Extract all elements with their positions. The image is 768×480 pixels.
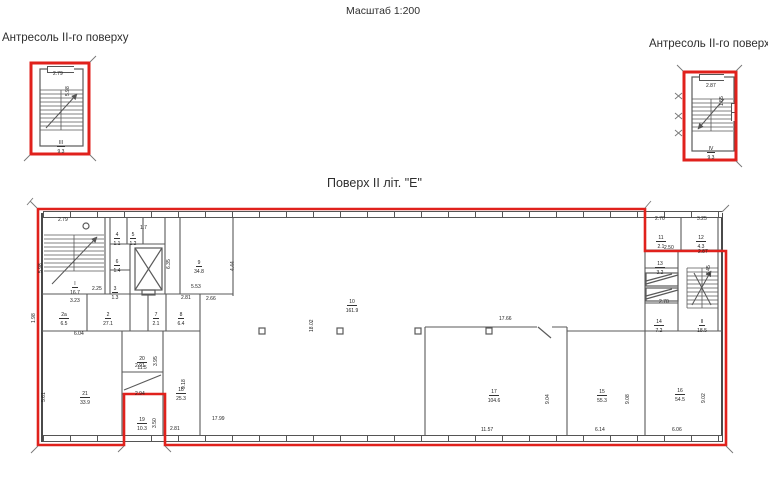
room-area: 18.5 (691, 328, 713, 334)
dimension-text: 2.25 (92, 287, 102, 292)
room-number: 19 (137, 417, 147, 424)
room-area: 1.3 (104, 295, 126, 301)
room-label: 17104.6 (483, 380, 505, 404)
room-number: 14 (654, 319, 664, 326)
room-number: 13 (655, 261, 665, 268)
room-area: 25.3 (170, 396, 192, 402)
room-label: I16.7 (64, 272, 86, 296)
room-label: 124.3 (690, 226, 712, 250)
room-area: 2.1 (145, 321, 167, 327)
floor-plan-document: Масштаб 1:200 Антресоль II-го поверху Ан… (0, 0, 768, 480)
room-number: III (57, 140, 65, 147)
room-number: 10 (347, 299, 357, 306)
dimension-text: 2.91 (135, 364, 145, 369)
room-number: 2 (105, 312, 112, 319)
room-number: 12 (696, 235, 706, 242)
room-number: 16 (675, 388, 685, 395)
dimension-text: 5.98 (66, 86, 71, 96)
room-number: 20 (137, 356, 147, 363)
room-label: 31.3 (104, 277, 126, 301)
room-number: 21 (80, 391, 90, 398)
dimension-text: 1.7 (140, 226, 147, 231)
dimension-text: 2.81 (181, 296, 191, 301)
room-label: IV9.3 (700, 137, 722, 161)
dimension-text: 18.02 (310, 319, 315, 332)
room-label: 10161.9 (341, 290, 363, 314)
room-label: 2133.9 (74, 382, 96, 406)
room-number: IV (707, 146, 716, 153)
room-area: 6.5 (53, 321, 75, 327)
room-area: 3.2 (649, 270, 671, 276)
dimension-text: 9.04 (546, 394, 551, 404)
room-area: 54.5 (669, 397, 691, 403)
dimension-text: 2.87 (706, 84, 716, 89)
room-number: 8 (178, 312, 185, 319)
room-label: 147.2 (648, 310, 670, 334)
room-number: I (72, 281, 77, 288)
dimension-text: 5.98 (39, 263, 44, 273)
room-area: 9.3 (50, 149, 72, 155)
room-number: 5 (130, 232, 137, 239)
dimension-text: 3.25 (697, 217, 707, 222)
room-number: 11 (656, 235, 665, 242)
dimension-text: 3.95 (154, 356, 159, 366)
room-number: 6 (114, 259, 121, 266)
dimension-text: 4.44 (231, 261, 236, 271)
room-label: 72.1 (145, 303, 167, 327)
dimension-text: 2.70 (655, 217, 665, 222)
room-label: 934.8 (188, 251, 210, 275)
room-number: 9 (196, 260, 203, 267)
room-number: II (699, 319, 706, 326)
room-area: 6.4 (170, 321, 192, 327)
room-label: 1654.5 (669, 379, 691, 403)
room-area: 33.9 (74, 400, 96, 406)
dimension-text: 1.98 (32, 313, 37, 323)
dimension-text: 2.81 (170, 427, 180, 432)
room-label: 1555.3 (591, 380, 613, 404)
room-area: 10.3 (131, 426, 153, 432)
room-area: 1.2 (122, 241, 144, 247)
room-label: II18.5 (691, 310, 713, 334)
dimension-text: 1.55 (720, 96, 725, 106)
room-label: 86.4 (170, 303, 192, 327)
room-label: 61.4 (106, 250, 128, 274)
room-label: 133.2 (649, 252, 671, 276)
room-area: 9.3 (700, 155, 722, 161)
dimension-text: 2.87 (698, 250, 708, 255)
dimension-text: 6.06 (672, 428, 682, 433)
dimension-text: 3.45 (707, 265, 712, 275)
room-area: 55.3 (591, 398, 613, 404)
room-number: 17 (489, 389, 499, 396)
room-area: 16.7 (64, 290, 86, 296)
room-number: 2а (59, 312, 69, 319)
room-number: 4 (114, 232, 121, 239)
room-area: 1.4 (106, 268, 128, 274)
dimension-text: 6.14 (595, 428, 605, 433)
dimension-text: 5.53 (191, 285, 201, 290)
room-area: 34.8 (188, 269, 210, 275)
dimension-text: 17.99 (212, 417, 225, 422)
dimension-text: 2.50 (664, 246, 674, 251)
room-number: 15 (597, 389, 607, 396)
room-area: 104.6 (483, 398, 505, 404)
dimension-text: 17.66 (499, 317, 512, 322)
dimension-text: 2.94 (135, 392, 145, 397)
room-number: 7 (153, 312, 160, 319)
dimension-text: 9.08 (626, 394, 631, 404)
dimension-text: 2.66 (206, 297, 216, 302)
dimension-text: 9.02 (702, 393, 707, 403)
room-area: 161.9 (341, 308, 363, 314)
room-number: 3 (112, 286, 119, 293)
dimension-text: 3.50 (153, 418, 158, 428)
room-label: III9.3 (50, 131, 72, 155)
dimension-text: 6.35 (167, 259, 172, 269)
dimension-text: 3.23 (70, 299, 80, 304)
room-label: 1910.3 (131, 408, 153, 432)
room-area: 27.1 (97, 321, 119, 327)
dimension-text: 2.79 (53, 72, 63, 77)
room-label: 2а6.5 (53, 303, 75, 327)
dimension-text: 2.70 (659, 300, 669, 305)
dimension-text: 11.57 (481, 428, 493, 433)
room-label: 227.1 (97, 303, 119, 327)
dimension-text: 9.18 (182, 379, 187, 389)
room-area: 7.2 (648, 328, 670, 334)
dimension-text: 6.04 (74, 332, 84, 337)
dimension-text: 5.61 (42, 392, 47, 402)
dimension-text: 2.79 (58, 218, 68, 223)
